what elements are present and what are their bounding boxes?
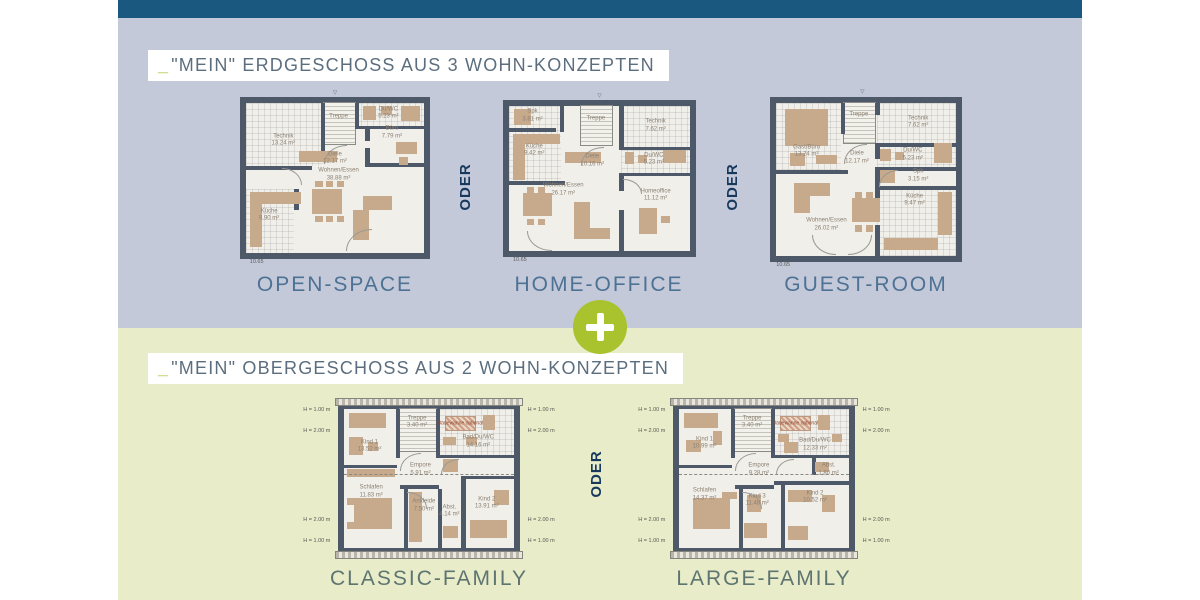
furniture-block — [639, 208, 657, 234]
wall-segment — [509, 128, 556, 132]
room-name: Diele — [850, 151, 864, 157]
room-area: 9.28 m² — [748, 470, 769, 478]
plan-caption-home-office: HOME-OFFICE — [469, 273, 729, 297]
room-label: Wohnen/Essen26.02 m² — [806, 218, 847, 233]
dimension-label: H = 2.00 m — [638, 517, 665, 523]
furniture-block — [934, 143, 952, 163]
room-area: 14.16 m² — [462, 442, 494, 450]
wall-segment — [365, 129, 370, 141]
room-area: 3.40 m² — [407, 423, 427, 431]
plan-caption-large-family: LARGE-FAMILY — [634, 567, 894, 591]
room-label: Gast/Büro13.24 m² — [793, 144, 820, 159]
room-name: Empore — [410, 463, 431, 469]
room-name: Technik — [645, 119, 665, 125]
title-underscore: _ — [158, 358, 169, 378]
room-name: Technik — [273, 133, 293, 139]
furniture-block — [784, 442, 798, 453]
room-area: 11.83 m² — [360, 492, 383, 500]
door-swing-arc — [346, 229, 372, 251]
room-name: Abst. — [443, 504, 457, 510]
wall-segment — [365, 163, 424, 167]
staircase — [844, 103, 875, 143]
furniture-block — [832, 434, 842, 442]
room-name: Ankleide — [412, 499, 435, 505]
floor-plan-classic-family: Badewanne optionalKind 113.52 m²Treppe3.… — [338, 403, 520, 554]
furniture-block — [684, 413, 718, 428]
room-name: Treppe — [329, 113, 348, 119]
room-area: 1.80 m² — [818, 470, 838, 478]
wall-segment — [776, 170, 848, 174]
floor-plan-guest-room: Gast/Büro13.24 m²TreppeTechnik7.62 m²Die… — [770, 97, 962, 262]
dimension-label: ▽ — [860, 89, 864, 95]
room-label: Wohnen/Essen26.17 m² — [543, 183, 584, 198]
furniture-block — [788, 526, 808, 540]
room-name: Treppe — [743, 415, 762, 421]
room-area: 10.16 m² — [580, 161, 604, 169]
room-name: Küche — [526, 143, 543, 149]
room-name: Kind 1 — [696, 436, 713, 442]
furniture-block — [866, 225, 873, 231]
room-label: Empore9.28 m² — [748, 463, 769, 478]
furniture-block — [663, 150, 687, 163]
title-underscore: _ — [158, 55, 169, 75]
room-label: Küche9.42 m² — [524, 143, 544, 158]
room-label: Kind 113.52 m² — [358, 439, 382, 454]
furniture-block — [852, 198, 881, 222]
room-area: 5.23 m² — [644, 160, 664, 168]
room-name: Du/WC — [379, 106, 398, 112]
furniture-block — [625, 152, 634, 164]
room-label: Kind 210.52 m² — [803, 490, 827, 505]
room-name: Homeoffice — [640, 188, 670, 194]
room-area: 7.79 m² — [382, 133, 402, 141]
room-label: Treppe — [849, 111, 868, 119]
roof-overhang-hatch — [336, 399, 522, 405]
furniture-block — [312, 189, 342, 215]
door-swing-arc — [623, 179, 642, 195]
wall-segment — [344, 465, 397, 469]
top-header-bar — [118, 0, 1082, 18]
wall-segment — [355, 103, 360, 126]
wall-segment — [875, 103, 880, 115]
oder-separator-label: ODER — [456, 157, 476, 217]
room-name: Schlafen — [360, 485, 383, 491]
plan-interior: Spk3.81 m²Küche9.42 m²TreppeTechnik7.62 … — [509, 106, 690, 251]
room-label: Bad/Du/WC12.33 m² — [799, 438, 831, 453]
room-area: 5.91 m² — [410, 470, 431, 478]
room-name: Kind 2 — [478, 496, 495, 502]
wall-segment — [875, 147, 880, 159]
room-label: Technik7.62 m² — [645, 119, 665, 134]
room-area: 12.17 m² — [323, 159, 347, 167]
dimension-label: H = 2.00 m — [303, 428, 330, 434]
dimension-label: H = 1.00 m — [863, 538, 890, 544]
room-label: Diele10.16 m² — [580, 154, 604, 169]
furniture-block — [880, 149, 891, 161]
room-name: Abst. — [822, 463, 836, 469]
room-name: Spk — [527, 109, 537, 115]
room-area: 7.62 m² — [908, 123, 928, 131]
dimension-label: H = 1.00 m — [638, 538, 665, 544]
room-area: 3.81 m² — [522, 116, 542, 124]
dimension-label: H = 1.00 m — [303, 538, 330, 544]
room-label: Ankleide7.50 m² — [412, 499, 435, 514]
room-name: Diele — [585, 154, 599, 160]
room-label: Spk3.15 m² — [908, 169, 928, 184]
dimension-label: H = 1.00 m — [528, 538, 555, 544]
room-label: Kind 213.91 m² — [475, 496, 499, 511]
dimension-label: ▽ — [333, 90, 337, 96]
wall-segment — [560, 106, 565, 132]
room-label: Homeoffice11.12 m² — [640, 188, 670, 203]
plan-interior: Badewanne optionalKind 110.99 m²Treppe3.… — [679, 409, 849, 548]
title-text: "MEIN" ERDGESCHOSS AUS 3 WOHN-KONZEPTEN — [171, 55, 655, 75]
title-text: "MEIN" OBERGESCHOSS AUS 2 WOHN-KONZEPTEN — [171, 358, 669, 378]
erdgeschoss-section-title: _"MEIN" ERDGESCHOSS AUS 3 WOHN-KONZEPTEN — [148, 50, 669, 81]
furniture-block — [399, 157, 408, 165]
room-area: 9.47 m² — [904, 201, 924, 209]
room-label: Bad/Du/WC14.16 m² — [462, 435, 494, 450]
wall-segment — [461, 476, 514, 480]
furniture-block — [785, 109, 828, 146]
room-area: 12.33 m² — [799, 445, 831, 453]
plus-icon — [573, 300, 627, 354]
room-area: 11.48 m² — [746, 501, 769, 509]
room-label: Treppe — [329, 113, 348, 121]
room-label: Wohnen/Essen38.88 m² — [318, 168, 359, 183]
furniture-block — [443, 526, 458, 539]
roof-overhang-hatch — [671, 552, 857, 558]
plan-caption-classic-family: CLASSIC-FAMILY — [299, 567, 559, 591]
room-name: Schlafen — [693, 488, 716, 494]
roof-overhang-hatch — [336, 552, 522, 558]
room-label: Treppe3.40 m² — [742, 415, 762, 430]
room-label: Küche9.47 m² — [904, 193, 924, 208]
door-swing-arc — [848, 235, 872, 256]
floor-plan-large-family: Badewanne optionalKind 110.99 m²Treppe3.… — [673, 403, 855, 554]
room-name: Küche — [906, 193, 923, 199]
oder-separator-label: ODER — [587, 444, 607, 504]
furniture-block — [354, 498, 391, 529]
room-label: Kind 110.99 m² — [693, 436, 717, 451]
obergeschoss-section-title: _"MEIN" OBERGESCHOSS AUS 2 WOHN-KONZEPTE… — [148, 353, 683, 384]
room-name: Diele — [328, 151, 342, 157]
wall-segment — [774, 481, 849, 485]
plan-interior: Badewanne optionalKind 113.52 m²Treppe3.… — [344, 409, 514, 548]
wall-segment — [619, 173, 690, 177]
furniture-block — [884, 238, 938, 250]
room-name: Büro — [386, 126, 399, 132]
room-area: 7.50 m² — [412, 506, 435, 514]
room-area: 10.52 m² — [803, 498, 827, 506]
furniture-block — [722, 492, 737, 499]
furniture-block — [818, 415, 830, 430]
furniture-block — [527, 187, 534, 193]
furniture-block — [525, 134, 559, 144]
dimension-label: H = 2.00 m — [528, 428, 555, 434]
staircase — [581, 106, 612, 145]
room-name: Kind 1 — [361, 439, 378, 445]
room-area: 13.91 m² — [475, 504, 499, 512]
room-area: 13.24 m² — [272, 141, 296, 149]
room-name: Kind 3 — [749, 493, 766, 499]
bathtub-optional-block: Badewanne optional — [781, 417, 810, 430]
room-name: Gast/Büro — [793, 144, 820, 150]
room-label: Schlafen11.83 m² — [360, 485, 383, 500]
oder-separator-label: ODER — [723, 157, 743, 217]
room-area: 9.42 m² — [524, 151, 544, 159]
furniture-block — [527, 219, 534, 225]
room-name: Du/WC — [644, 152, 663, 158]
wall-segment — [841, 103, 846, 134]
room-label: Küche9.90 m² — [259, 208, 279, 223]
furniture-block — [470, 520, 507, 538]
room-area: 3.40 m² — [742, 423, 762, 431]
door-swing-arc — [527, 231, 552, 251]
room-name: Bad/Du/WC — [462, 435, 494, 441]
room-area: 10.99 m² — [693, 444, 717, 452]
dimension-label: 10.65 — [250, 259, 264, 265]
wall-segment — [731, 409, 735, 458]
room-area: 5.23 m² — [378, 114, 398, 122]
room-name: Treppe — [849, 111, 868, 117]
room-label: Kind 311.48 m² — [746, 493, 769, 508]
room-label: Diele12.17 m² — [323, 151, 347, 166]
furniture-block — [938, 192, 952, 235]
dimension-label: H = 1.00 m — [863, 407, 890, 413]
wall-segment — [781, 485, 785, 548]
dimension-label: ▽ — [597, 93, 601, 99]
room-area: 38.88 m² — [318, 175, 359, 183]
furniture-block — [778, 434, 790, 442]
door-swing-arc — [776, 459, 794, 474]
bathtub-optional-label: Badewanne optional — [773, 421, 818, 427]
floor-plan-open-space: Technik13.24 m²TreppeDu/WC5.23 m²Diele12… — [240, 97, 430, 259]
plan-caption-guest-room: GUEST-ROOM — [736, 273, 996, 297]
room-name: Küche — [261, 208, 278, 214]
furniture-block — [866, 192, 873, 198]
wall-segment — [619, 106, 624, 150]
room-name: Wohnen/Essen — [318, 168, 359, 174]
furniture-block — [262, 192, 301, 204]
room-area: 13.24 m² — [793, 152, 820, 160]
furniture-block — [744, 523, 768, 538]
room-area: 11.12 m² — [640, 196, 670, 204]
dimension-label: 10.65 — [776, 262, 790, 268]
room-label: Schlafen14.37 m² — [693, 488, 717, 503]
room-label: Spk3.81 m² — [522, 109, 542, 124]
furniture-block — [315, 216, 322, 222]
door-swing-arc — [282, 168, 303, 186]
furniture-block — [574, 202, 590, 231]
room-name: Empore — [748, 463, 769, 469]
room-name: Technik — [908, 115, 928, 121]
wall-segment — [246, 166, 312, 170]
furniture-block — [349, 413, 386, 428]
plan-interior: Technik13.24 m²TreppeDu/WC5.23 m²Diele12… — [246, 103, 424, 253]
room-label: Technik13.24 m² — [272, 133, 296, 148]
room-area: 9.90 m² — [259, 216, 279, 224]
room-label: Du/WC5.23 m² — [378, 106, 398, 121]
floor-plan-home-office: Spk3.81 m²Küche9.42 m²TreppeTechnik7.62 … — [503, 100, 696, 257]
room-area: 7.62 m² — [645, 126, 665, 134]
dimension-label: H = 2.00 m — [863, 428, 890, 434]
furniture-block — [443, 437, 457, 445]
wall-segment — [771, 409, 775, 458]
furniture-block — [363, 106, 375, 120]
furniture-block — [347, 469, 395, 477]
furniture-block — [337, 216, 344, 222]
furniture-block — [347, 498, 354, 505]
room-area: 5.23 m² — [903, 155, 923, 163]
dimension-label: H = 1.00 m — [528, 407, 555, 413]
room-label: Treppe3.40 m² — [407, 415, 427, 430]
wall-segment — [321, 103, 326, 156]
dimension-label: H = 1.00 m — [638, 407, 665, 413]
roof-overhang-hatch — [671, 399, 857, 405]
room-name: Wohnen/Essen — [806, 218, 847, 224]
wall-segment — [679, 465, 732, 469]
room-area: 4.14 m² — [439, 512, 459, 520]
dimension-label: H = 2.00 m — [528, 517, 555, 523]
furniture-block — [661, 216, 670, 223]
wall-segment — [875, 225, 880, 256]
wall-segment — [439, 455, 514, 459]
room-area: 14.37 m² — [693, 495, 717, 503]
room-name: Treppe — [586, 115, 605, 121]
room-name: Kind 2 — [806, 490, 823, 496]
dimension-label: H = 2.00 m — [303, 517, 330, 523]
dimension-label: H = 2.00 m — [863, 517, 890, 523]
room-label: Treppe — [586, 115, 605, 123]
furniture-block — [855, 192, 862, 198]
wall-segment — [619, 210, 624, 251]
wall-segment — [396, 409, 400, 458]
room-area: 12.17 m² — [845, 158, 869, 166]
plan-interior: Gast/Büro13.24 m²TreppeTechnik7.62 m²Die… — [776, 103, 956, 256]
room-name: Treppe — [408, 415, 427, 421]
furniture-block — [326, 216, 333, 222]
bathtub-optional-block: Badewanne optional — [446, 417, 475, 430]
furniture-block — [396, 142, 417, 154]
dimension-label: H = 1.00 m — [303, 407, 330, 413]
room-label: Büro7.79 m² — [382, 126, 402, 141]
wall-segment — [461, 476, 465, 548]
furniture-block — [347, 522, 354, 529]
wall-segment — [436, 409, 440, 458]
room-area: 13.52 m² — [358, 447, 382, 455]
staircase — [324, 103, 354, 144]
furniture-block — [363, 196, 391, 210]
room-label: Technik7.62 m² — [908, 115, 928, 130]
room-label: Empore5.91 m² — [410, 463, 431, 478]
room-label: Du/WC5.23 m² — [903, 148, 923, 163]
room-name: Wohnen/Essen — [543, 183, 584, 189]
dimension-label: H = 2.00 m — [638, 428, 665, 434]
furniture-block — [483, 415, 495, 430]
furniture-block — [794, 183, 810, 214]
room-area: 26.02 m² — [806, 225, 847, 233]
room-name: Bad/Du/WC — [799, 438, 831, 444]
room-area: 26.17 m² — [543, 190, 584, 198]
dimension-label: 10.65 — [513, 257, 527, 263]
furniture-block — [401, 106, 421, 121]
furniture-block — [574, 228, 610, 240]
bathtub-optional-label: Badewanne optional — [438, 421, 483, 427]
room-name: Du/WC — [903, 148, 922, 154]
plan-caption-open-space: OPEN-SPACE — [205, 273, 465, 297]
room-label: Du/WC5.23 m² — [644, 152, 664, 167]
room-name: Spk — [913, 169, 923, 175]
room-label: Abst.4.14 m² — [439, 504, 459, 519]
room-label: Diele12.17 m² — [845, 151, 869, 166]
furniture-block — [538, 219, 545, 225]
furniture-block — [855, 225, 862, 231]
page-canvas: _"MEIN" ERDGESCHOSS AUS 3 WOHN-KONZEPTEN… — [0, 0, 1200, 600]
room-area: 3.15 m² — [908, 176, 928, 184]
room-label: Abst.1.80 m² — [818, 463, 838, 478]
door-swing-arc — [812, 235, 836, 256]
